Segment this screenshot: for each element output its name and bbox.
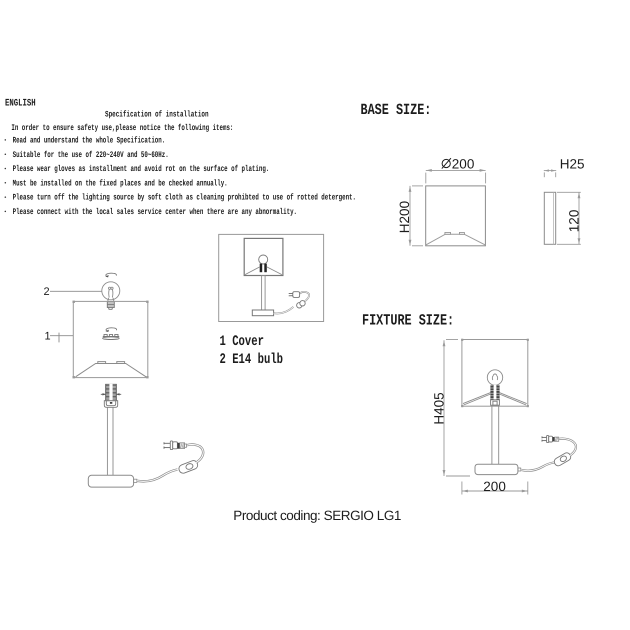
svg-text:Suitable for the use of 220~24: Suitable for the use of 220~240V and 50~… — [13, 150, 169, 160]
svg-text:Please wear gloves as installm: Please wear gloves as installment and av… — [13, 164, 270, 174]
svg-text:H405: H405 — [432, 392, 447, 424]
svg-text:1: 1 — [45, 330, 51, 342]
svg-text:Must be installed on the fixed: Must be installed on the fixed places an… — [13, 178, 228, 188]
svg-text:H200: H200 — [397, 201, 412, 233]
svg-text:2 E14 bulb: 2 E14 bulb — [220, 352, 284, 368]
svg-text:ENGLISH: ENGLISH — [5, 99, 36, 110]
svg-text:Specification of installation: Specification of installation — [105, 110, 209, 120]
svg-text:1 Cover: 1 Cover — [220, 334, 264, 350]
svg-text:FIXTURE SIZE:: FIXTURE SIZE: — [362, 312, 454, 330]
svg-text:2: 2 — [44, 286, 50, 298]
svg-text:H25: H25 — [560, 157, 585, 172]
svg-text:Please turn off the lighting s: Please turn off the lighting source by s… — [13, 193, 356, 203]
svg-text:Read and understand the whole: Read and understand the whole Specificat… — [13, 136, 166, 146]
svg-text:Please connect with the local: Please connect with the local sales serv… — [13, 207, 297, 217]
svg-text:120: 120 — [566, 210, 581, 233]
svg-text:In order to ensure safety use,: In order to ensure safety use,please not… — [11, 123, 233, 133]
svg-text:Product coding: SERGIO LG1: Product coding: SERGIO LG1 — [233, 508, 401, 523]
svg-text:200: 200 — [452, 157, 475, 172]
svg-text:200: 200 — [483, 479, 506, 494]
svg-text:BASE SIZE:: BASE SIZE: — [361, 101, 432, 119]
